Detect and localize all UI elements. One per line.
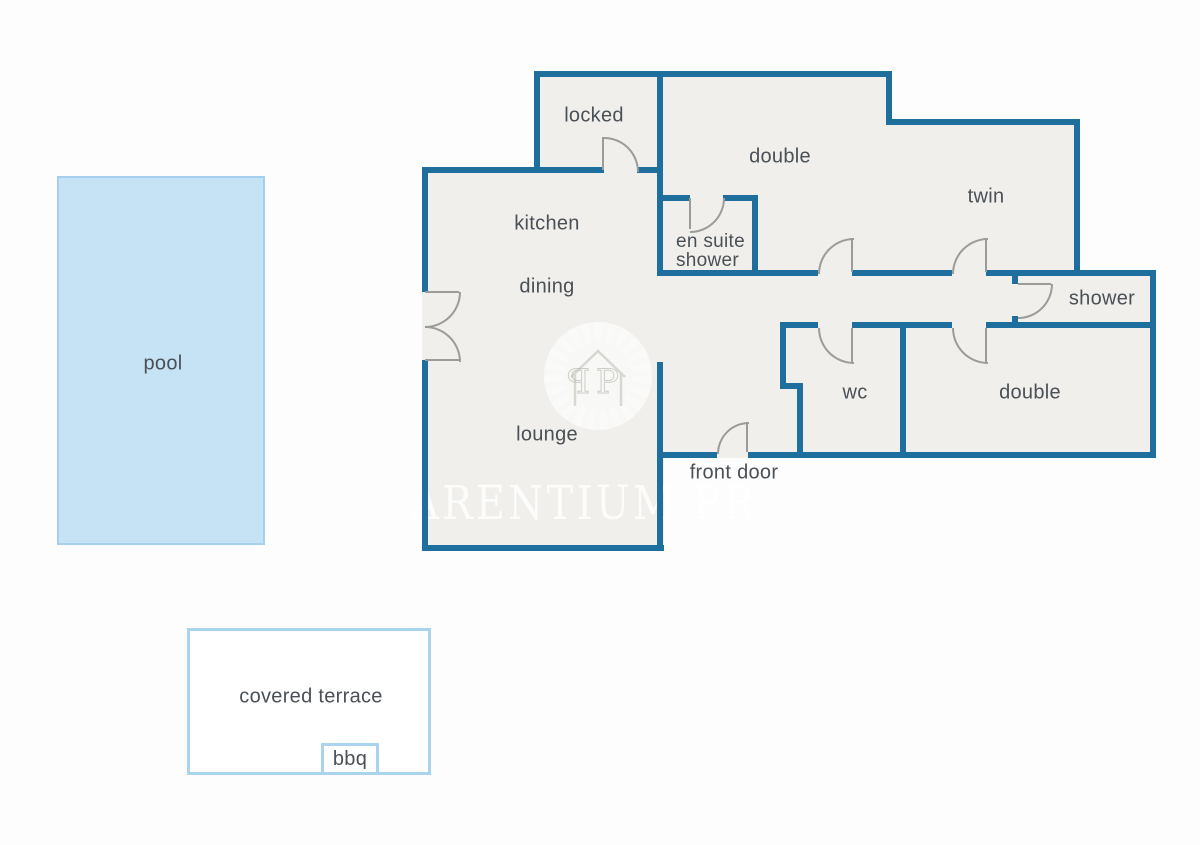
wall-segment xyxy=(852,270,952,276)
door-leaf-locked xyxy=(602,137,604,170)
door-leaf-twin xyxy=(985,238,987,272)
wall-segment xyxy=(422,545,664,551)
pool-label: pool xyxy=(143,353,182,376)
room-label-dining: dining xyxy=(519,276,574,299)
covered-terrace-area: covered terrace bbq xyxy=(187,628,431,775)
wall-segment xyxy=(422,167,428,292)
door-leaf-ensuite xyxy=(689,198,691,229)
wall-segment xyxy=(657,71,663,276)
room-label-locked: locked xyxy=(564,105,624,128)
room-label-ensuite: en suiteshower xyxy=(676,232,745,270)
wall-segment xyxy=(748,452,1156,458)
watermark-logo: P P xyxy=(544,322,652,430)
wall-segment xyxy=(534,71,540,173)
wall-segment xyxy=(1150,270,1156,458)
wall-segment xyxy=(422,167,604,173)
door-leaf-front xyxy=(746,422,748,452)
wall-segment xyxy=(886,71,892,125)
wall-segment xyxy=(797,383,803,458)
watermark-monogram-left: P xyxy=(567,362,590,402)
floorplan-canvas: pool covered terrace bbq P P ARENTIUM PR xyxy=(0,0,1200,845)
wall-segment xyxy=(780,322,786,389)
wall-segment xyxy=(1074,119,1080,276)
door-leaf-double-bottom xyxy=(985,328,987,362)
door-leaf-french-top xyxy=(425,291,459,293)
bbq-area: bbq xyxy=(321,743,379,775)
bbq-label: bbq xyxy=(333,748,367,771)
door-leaf-shower xyxy=(1018,283,1051,285)
door-leaf-double-top xyxy=(851,238,853,272)
room-label-double-bottom: double xyxy=(999,382,1061,405)
wall-segment xyxy=(1012,270,1018,284)
room-label-shower: shower xyxy=(1069,288,1135,311)
covered-terrace-label: covered terrace xyxy=(239,686,382,709)
pool-area: pool xyxy=(57,176,265,545)
watermark-logo-icon: P P xyxy=(544,322,652,430)
room-label-double-top: double xyxy=(749,146,811,169)
room-label-wc: wc xyxy=(842,382,867,405)
wall-segment xyxy=(657,452,717,458)
front-door-label: front door xyxy=(690,462,779,485)
wall-segment xyxy=(886,119,1080,125)
room-label-lounge: lounge xyxy=(516,424,578,447)
room-label-kitchen: kitchen xyxy=(514,213,579,236)
wall-segment xyxy=(900,322,906,458)
door-leaf-french-bottom xyxy=(425,359,459,361)
door-leaf-wc xyxy=(851,328,853,362)
room-label-twin: twin xyxy=(968,186,1005,209)
wall-segment xyxy=(657,362,663,551)
wall-segment xyxy=(534,71,891,77)
wall-segment xyxy=(422,360,428,551)
wall-segment xyxy=(752,195,758,276)
watermark-monogram-right: P xyxy=(596,362,619,402)
